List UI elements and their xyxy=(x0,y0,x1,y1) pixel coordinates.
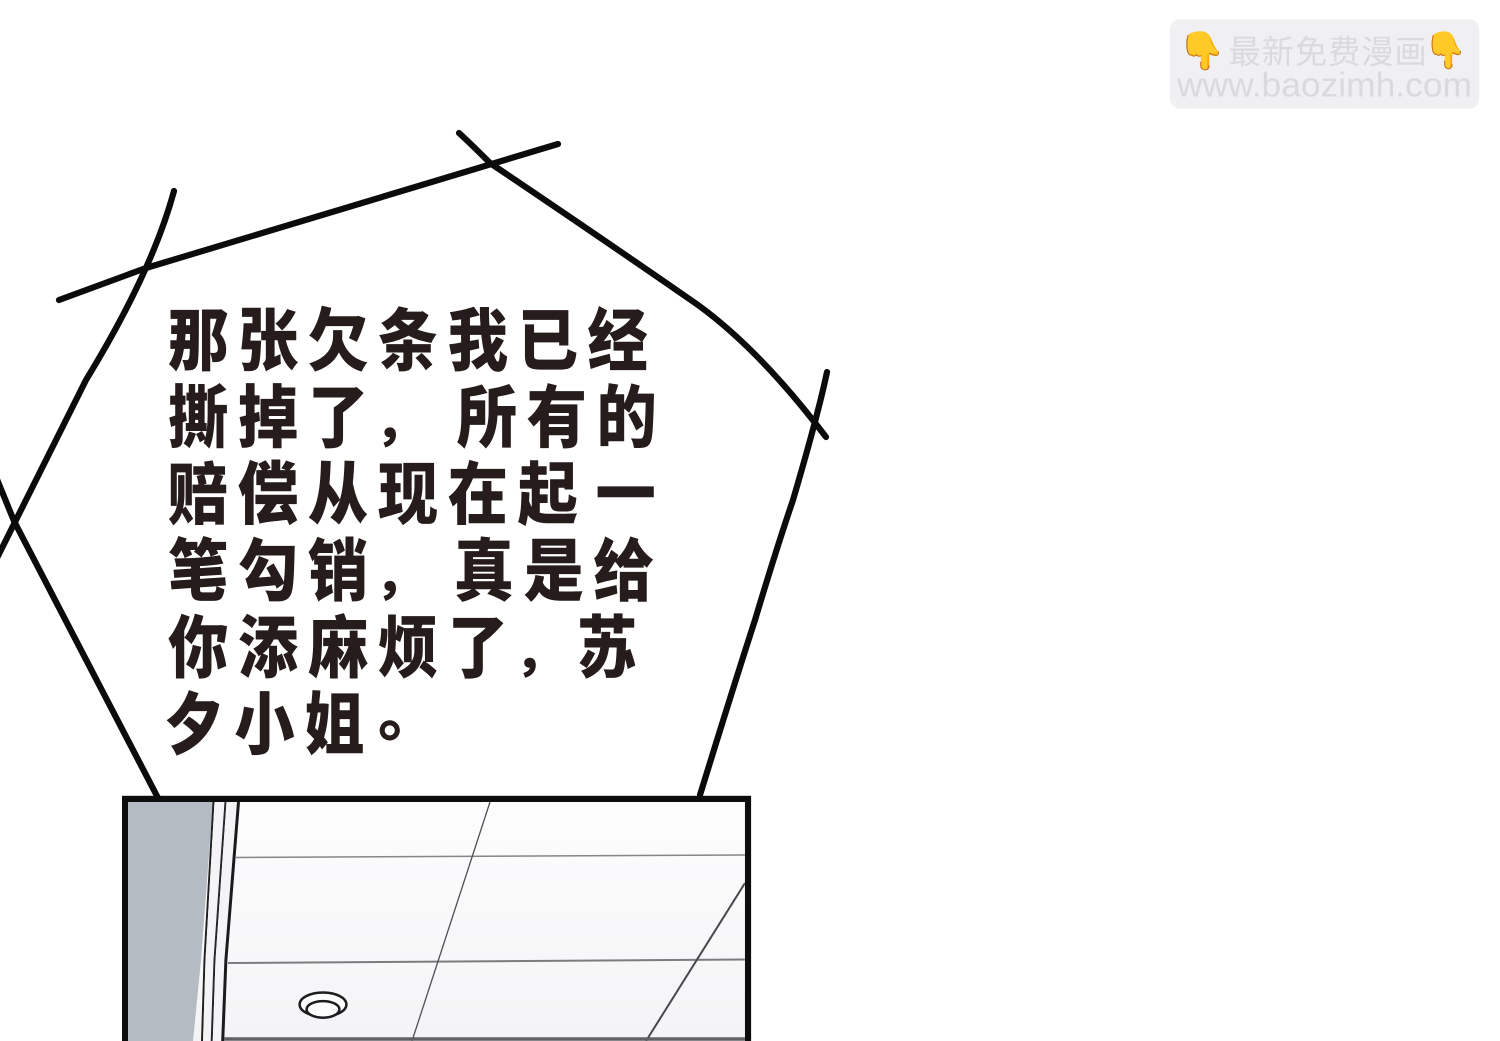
svg-text:www.baozimh.com: www.baozimh.com xyxy=(1176,66,1472,104)
